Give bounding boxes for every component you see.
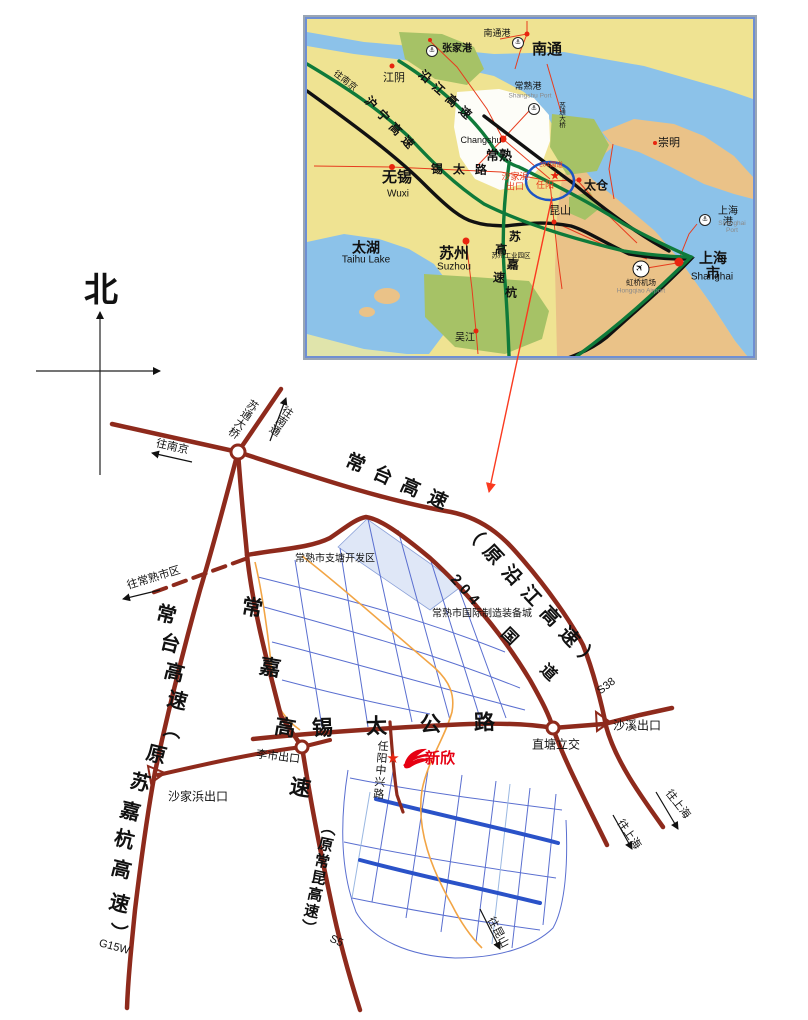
leader-arrow [0, 0, 808, 1020]
location-map-page: ⚓张家港南通港⚓南通江阴往南京沿江高速沪宁高速常熟港Shangshu Port⚓… [0, 0, 808, 1020]
